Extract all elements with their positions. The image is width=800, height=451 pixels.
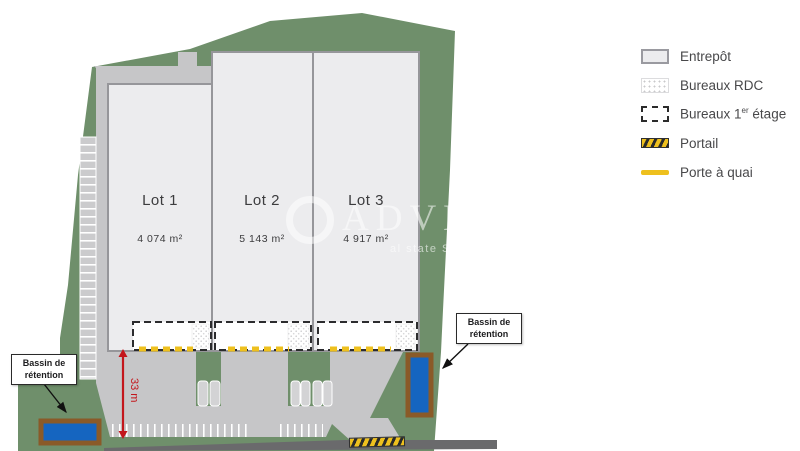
island-stall: [301, 381, 310, 406]
parking-strip-bottom-1: [110, 424, 250, 437]
lot-1-area: 4 074 m²: [110, 233, 210, 245]
legend-label: Portail: [680, 136, 718, 151]
lot-3-label: Lot 3 4 917 m²: [316, 192, 416, 245]
portal-gate: [349, 436, 405, 447]
callout-line2: rétention: [12, 370, 76, 382]
legend-item-bureaux-etage: Bureaux 1er étage: [641, 106, 786, 122]
retention-basin-left: [41, 421, 99, 443]
parking-strip-left: [80, 137, 96, 379]
lot-2-area: 5 143 m²: [212, 233, 312, 245]
site-plan-page: Lot 1 4 074 m² Lot 2 5 143 m² Lot 3 4 91…: [0, 0, 800, 451]
dock-door-swatch-icon: [641, 170, 669, 175]
dimension-label: 33 m: [128, 378, 140, 402]
island-stall: [198, 381, 208, 406]
legend-label: Bureaux RDC: [680, 78, 763, 93]
offices-ground-floor-lot-2: [288, 324, 309, 348]
callout-line1: Bassin de: [12, 358, 76, 370]
callout-basin-left: Bassin de rétention: [11, 354, 77, 385]
offices-ground-floor-lot-3: [396, 324, 415, 348]
callout-basin-right: Bassin de rétention: [456, 313, 522, 344]
offices-first-floor-swatch-icon: [641, 106, 669, 122]
legend-item-bureaux-rdc: Bureaux RDC: [641, 77, 786, 93]
legend-label: Porte à quai: [680, 165, 753, 180]
offices-ground-floor-lot-1: [192, 324, 209, 348]
lot-1-label: Lot 1 4 074 m²: [110, 192, 210, 245]
legend-label: Entrepôt: [680, 49, 731, 64]
lot-2-name: Lot 2: [212, 192, 312, 209]
legend: Entrepôt Bureaux RDC Bureaux 1er étage P…: [641, 48, 786, 193]
legend-item-entrepot: Entrepôt: [641, 48, 786, 64]
portal-swatch-icon: [641, 138, 669, 148]
offices-ground-floor-swatch-icon: [641, 78, 669, 93]
island-stall: [313, 381, 322, 406]
legend-item-porte-a-quai: Porte à quai: [641, 164, 786, 180]
callout-line1: Bassin de: [457, 317, 521, 329]
lot-3-name: Lot 3: [316, 192, 416, 209]
lot-2-label: Lot 2 5 143 m²: [212, 192, 312, 245]
lot-3-area: 4 917 m²: [316, 233, 416, 245]
island-stall: [291, 381, 300, 406]
legend-label: Bureaux 1er étage: [680, 106, 786, 122]
callout-line2: rétention: [457, 329, 521, 341]
lot-1-name: Lot 1: [110, 192, 210, 209]
parking-strip-bottom-2: [277, 424, 323, 437]
callout-arrow-right: [443, 344, 468, 368]
retention-basin-right: [408, 355, 431, 415]
warehouse-swatch-icon: [641, 49, 669, 64]
island-stall: [323, 381, 332, 406]
island-stall: [210, 381, 220, 406]
legend-item-portail: Portail: [641, 135, 786, 151]
